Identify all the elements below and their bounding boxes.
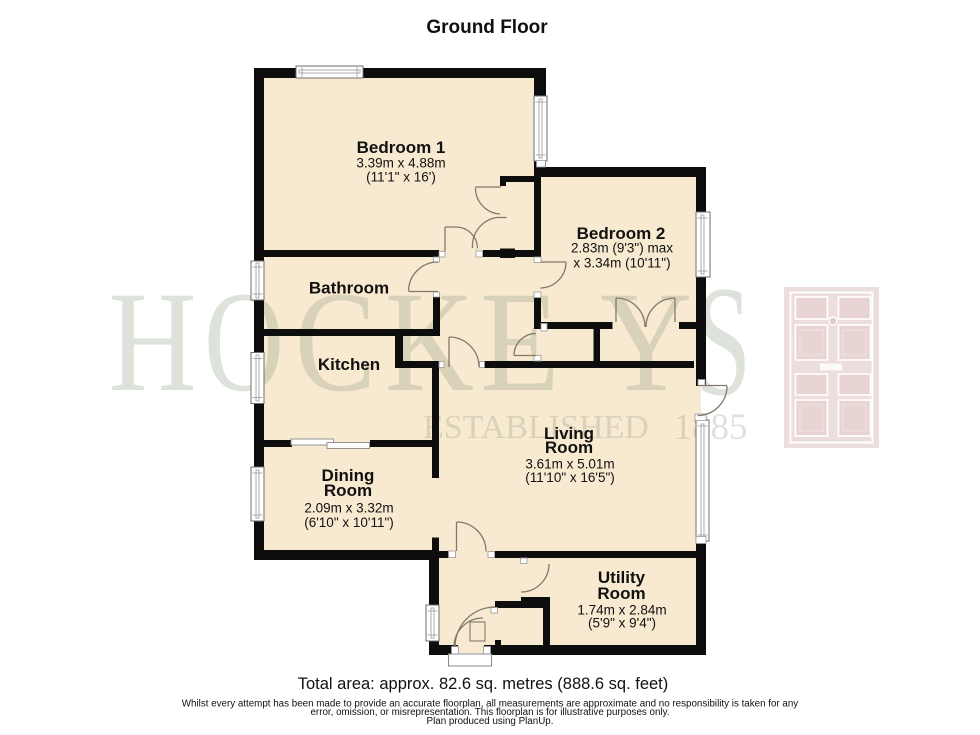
svg-text:Total area: approx. 82.6 sq. m: Total area: approx. 82.6 sq. metres (888… (298, 675, 669, 693)
svg-text:(5'9" x 9'4"): (5'9" x 9'4") (588, 616, 656, 631)
svg-text:Bathroom: Bathroom (309, 279, 389, 298)
svg-text:x 3.34m (10'11"): x 3.34m (10'11") (573, 256, 670, 271)
svg-text:O: O (204, 263, 284, 422)
svg-text:Room: Room (324, 481, 372, 500)
svg-text:2.83m (9'3") max: 2.83m (9'3") max (571, 241, 673, 256)
svg-text:Kitchen: Kitchen (318, 355, 380, 374)
svg-text:Ground Floor: Ground Floor (426, 17, 548, 38)
svg-text:Bedroom 1: Bedroom 1 (357, 138, 446, 157)
svg-text:Room: Room (597, 584, 645, 603)
svg-text:(11'10" x 16'5"): (11'10" x 16'5") (525, 470, 615, 485)
svg-text:ESTABLISHED: ESTABLISHED (423, 409, 649, 446)
svg-text:(11'1" x 16'): (11'1" x 16') (366, 170, 436, 185)
svg-text:Y: Y (600, 263, 692, 422)
svg-text:H: H (109, 263, 197, 422)
svg-text:(6'10" x 10'11"): (6'10" x 10'11") (304, 515, 394, 530)
svg-text:3.39m x 4.88m: 3.39m x 4.88m (356, 156, 445, 171)
svg-text:Plan produced using PlanUp.: Plan produced using PlanUp. (427, 716, 554, 727)
svg-text:Room: Room (545, 438, 593, 457)
svg-text:2.09m x 3.32m: 2.09m x 3.32m (304, 501, 393, 516)
